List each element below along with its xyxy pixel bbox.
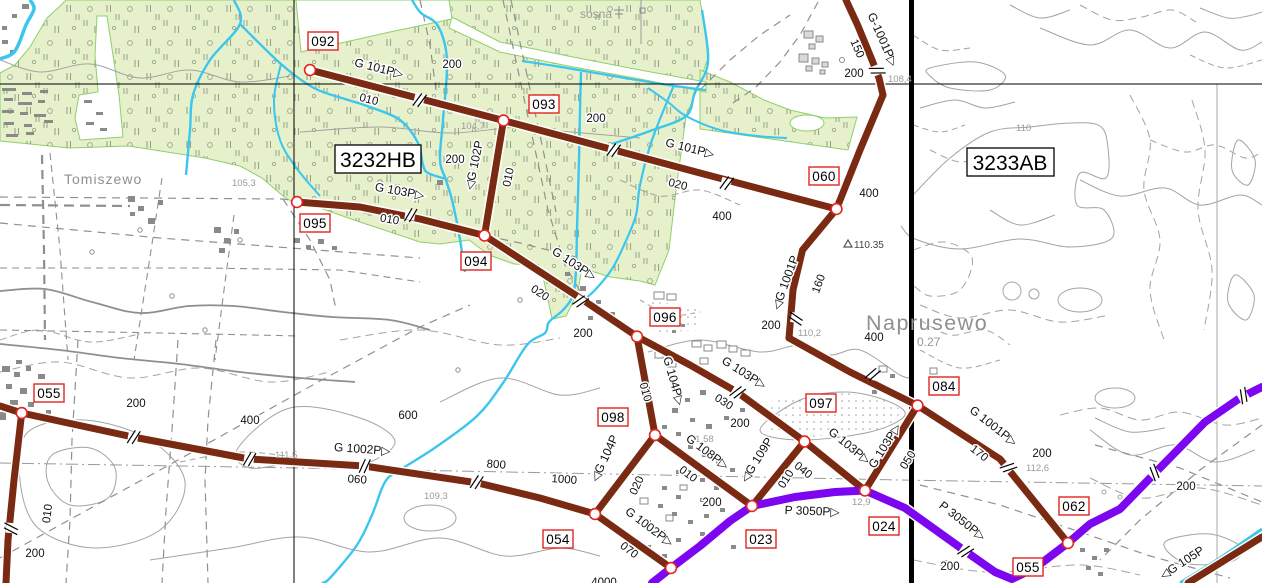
svg-text:110,2: 110,2 [798,328,821,339]
svg-text:sosna: sosna [580,7,612,21]
svg-text:062: 062 [1062,499,1085,514]
svg-text:060: 060 [812,169,835,184]
svg-text:024: 024 [872,519,896,534]
svg-text:104,7: 104,7 [461,121,485,132]
svg-text:200: 200 [1176,481,1195,493]
svg-text:097: 097 [809,396,832,411]
svg-text:105,3: 105,3 [232,178,256,189]
svg-text:112,6: 112,6 [1026,463,1049,474]
svg-text:600: 600 [398,410,417,422]
svg-text:200: 200 [730,418,749,430]
svg-text:400: 400 [712,211,731,223]
svg-text:400: 400 [864,332,883,344]
svg-text:054: 054 [546,532,570,547]
svg-text:200: 200 [1032,448,1051,460]
svg-text:084: 084 [932,379,956,394]
svg-text:200: 200 [940,561,959,573]
svg-text:200: 200 [844,68,863,80]
svg-text:060: 060 [347,473,367,486]
svg-text:Naprusewo: Naprusewo [866,311,988,335]
svg-text:200: 200 [702,497,721,509]
svg-text:109,3: 109,3 [424,491,448,502]
svg-text:3233AB: 3233AB [973,152,1048,175]
svg-text:200: 200 [761,320,780,332]
svg-text:200: 200 [573,328,592,340]
svg-text:055: 055 [1016,560,1039,575]
svg-text:093: 093 [532,97,555,112]
svg-text:200: 200 [586,113,605,125]
svg-text:3232HB: 3232HB [340,149,416,172]
svg-text:Tomiszewo: Tomiszewo [64,171,142,187]
svg-text:400: 400 [240,415,259,427]
svg-text:111,5: 111,5 [275,450,297,461]
svg-text:200: 200 [25,548,44,560]
svg-text:010: 010 [41,503,55,524]
svg-text:055: 055 [37,386,60,401]
svg-text:200: 200 [126,398,145,410]
svg-text:108,4: 108,4 [888,74,912,85]
svg-text:096: 096 [653,310,676,325]
svg-text:023: 023 [749,532,772,547]
svg-text:0.27: 0.27 [917,335,941,349]
svg-text:200: 200 [442,59,461,71]
svg-text:092: 092 [311,34,334,49]
svg-text:12,9: 12,9 [852,497,871,508]
svg-text:110.35: 110.35 [854,240,884,251]
svg-text:095: 095 [303,216,326,231]
svg-text:400: 400 [859,188,878,200]
svg-text:800: 800 [486,458,506,471]
svg-text:098: 098 [601,410,624,425]
svg-text:110: 110 [1016,123,1031,134]
svg-text:4000: 4000 [591,577,617,583]
svg-text:1000: 1000 [551,473,577,487]
svg-text:094: 094 [464,254,488,269]
svg-text:P 3050P▷: P 3050P▷ [784,503,840,519]
svg-text:200: 200 [445,154,464,166]
